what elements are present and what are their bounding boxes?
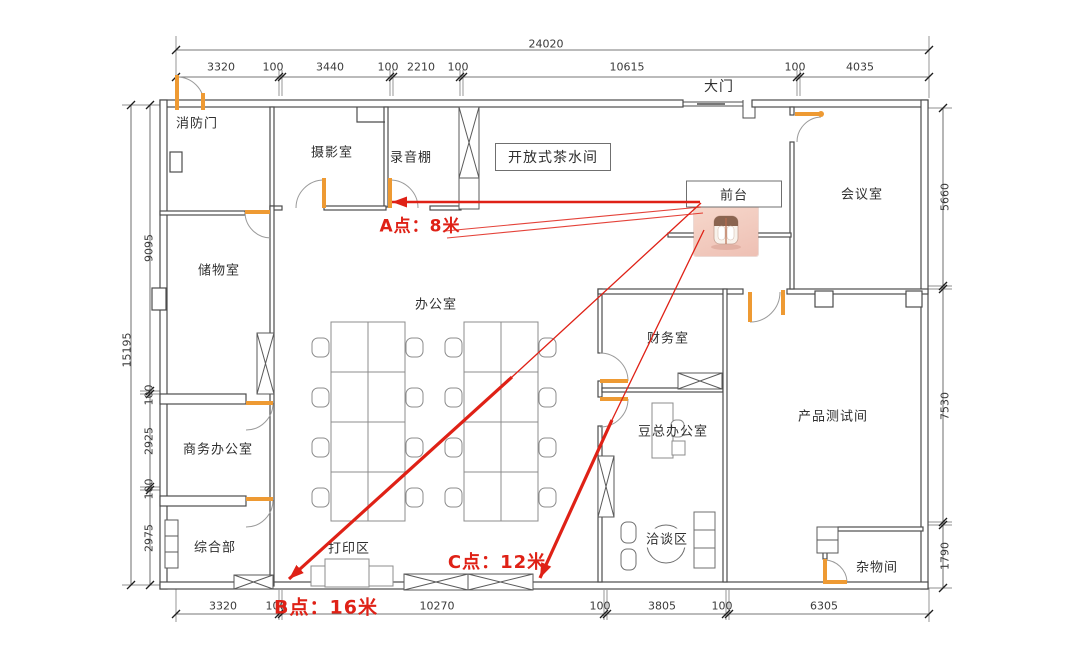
dim-bottom-4: 3805	[648, 600, 676, 613]
room-label-fire-door: 消防门	[176, 113, 218, 132]
room-label-meeting: 会议室	[841, 184, 883, 203]
main-gate-sliding-door	[683, 100, 755, 118]
room-label-boss: 豆总办公室	[638, 421, 708, 440]
printer-table	[311, 559, 393, 587]
dim-top-8: 4035	[846, 61, 874, 74]
dim-left-1: 100	[143, 385, 156, 406]
room-label-utility: 杂物间	[856, 557, 898, 576]
earbuds-icon	[694, 204, 758, 256]
dim-top-0: 3320	[207, 61, 235, 74]
dim-right-1: 7530	[939, 392, 952, 420]
dim-top-4: 2210	[407, 61, 435, 74]
floor-plan: 消防门 摄影室 录音棚 开放式茶水间 大门 前台 会议室 储物室 办公室 商务办…	[0, 0, 1080, 656]
dim-bottom-0: 3320	[209, 600, 237, 613]
dim-top-5: 100	[448, 61, 469, 74]
room-label-photography: 摄影室	[311, 142, 353, 161]
room-label-office: 办公室	[415, 294, 457, 313]
dim-bottom-3: 100	[590, 600, 611, 613]
room-label-recording: 录音棚	[390, 147, 432, 166]
room-label-finance: 财务室	[647, 328, 689, 347]
dim-top-7: 100	[785, 61, 806, 74]
dim-bottom-2: 10270	[420, 600, 455, 613]
dim-top-1: 100	[263, 61, 284, 74]
annotation-point-a: A点：8米	[380, 212, 461, 237]
room-label-business: 商务办公室	[183, 439, 253, 458]
dim-left-2: 2925	[143, 427, 156, 455]
dim-overall-height: 15195	[121, 333, 134, 368]
dim-left-0: 9095	[143, 234, 156, 262]
dim-left-3: 100	[143, 479, 156, 500]
room-label-tea: 开放式茶水间	[495, 143, 611, 171]
dim-top-6: 10615	[610, 61, 645, 74]
dim-left-4: 2975	[143, 524, 156, 552]
office-desks	[331, 322, 538, 521]
dim-right-2: 1790	[939, 542, 952, 570]
room-label-storage: 储物室	[198, 260, 240, 279]
room-label-gate: 大门	[704, 76, 734, 96]
room-label-negotiation: 洽谈区	[645, 529, 689, 548]
room-label-print: 打印区	[328, 538, 370, 557]
annotation-point-b: B点：16米	[274, 593, 378, 620]
room-label-product-test: 产品测试间	[798, 406, 868, 425]
room-label-reception: 前台	[686, 181, 782, 208]
room-label-general: 综合部	[194, 537, 236, 556]
dim-bottom-5: 100	[712, 600, 733, 613]
annotation-point-c: C点：12米	[448, 548, 546, 574]
reception-earbuds-photo	[694, 204, 758, 256]
dim-bottom-6: 6305	[810, 600, 838, 613]
dim-right-0: 5660	[939, 183, 952, 211]
dim-top-3: 100	[378, 61, 399, 74]
dim-top-2: 3440	[316, 61, 344, 74]
dim-overall-width: 24020	[529, 38, 564, 51]
